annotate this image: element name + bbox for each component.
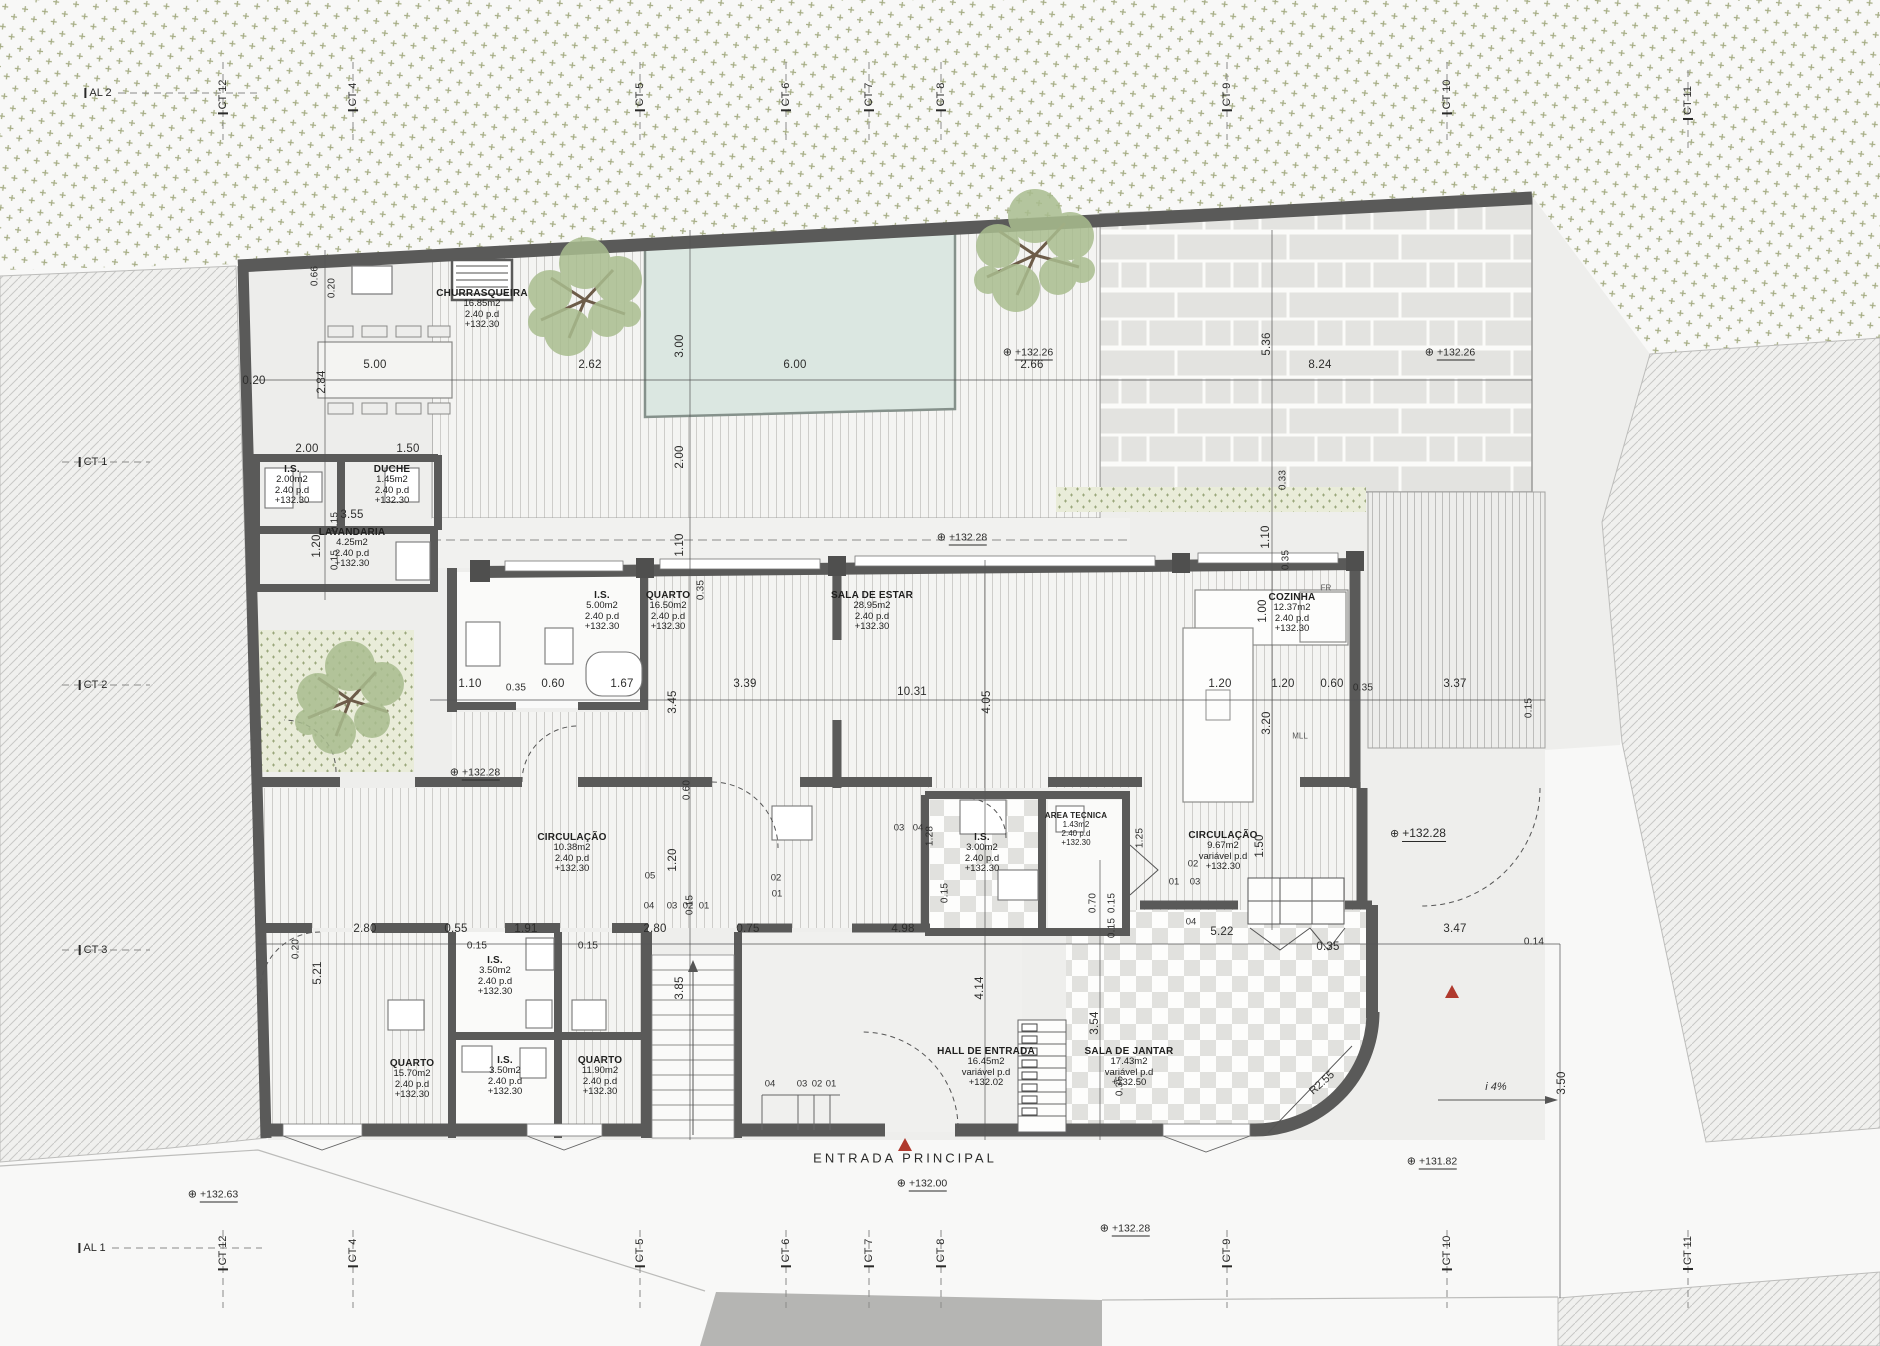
level-icon: ⊕ xyxy=(1100,1223,1109,1235)
kitchen-island xyxy=(1183,628,1253,802)
dim-label: 2.62 xyxy=(578,359,601,371)
dim-label: 0.15 xyxy=(1107,918,1118,938)
dim-label: 1.50 xyxy=(396,443,419,455)
dim-label: 8.24 xyxy=(1308,359,1331,371)
dim-label: 1.67 xyxy=(610,678,633,690)
room-label: HALL DE ENTRADA16.45m2variável p.d+132.0… xyxy=(937,1046,1035,1089)
dim-label: 1.20 xyxy=(1208,678,1231,690)
grid-label: CT 11 xyxy=(1683,1236,1693,1270)
grid-label: CT 8 xyxy=(936,1239,946,1268)
door-code: 02 xyxy=(771,873,782,884)
room-label: I.S.5.00m22.40 p.d+132.30 xyxy=(585,590,620,633)
level-icon: ⊕ xyxy=(1390,828,1399,840)
step-number: 01 xyxy=(699,901,710,912)
dim-label: 5.22 xyxy=(1210,926,1233,938)
dim-label: 0.66 xyxy=(310,266,321,286)
grid-label: CT 1 xyxy=(79,457,108,467)
dim-label: 0.35 xyxy=(1115,1076,1126,1096)
room-label: QUARTO11.90m22.40 p.d+132.30 xyxy=(578,1055,622,1098)
dim-label: 5.00 xyxy=(363,359,386,371)
dim-label: 0.60 xyxy=(1320,678,1343,690)
level-marker: ⊕+131.82 xyxy=(1407,1155,1457,1168)
room-label: SALA DE JANTAR17.43m2variável p.d+132.50 xyxy=(1085,1046,1174,1089)
dim-label: 3.20 xyxy=(1261,711,1273,734)
step-number: 03 xyxy=(797,1079,808,1090)
grid-label: CT 6 xyxy=(781,1239,791,1268)
floor-plan-sheet: CHURRASQUEIRA16.85m22.40 p.d+132.30 I.S.… xyxy=(0,0,1880,1346)
step-number: 05 xyxy=(645,871,656,882)
dim-label: 0.33 xyxy=(1278,470,1289,490)
dim-label: 1.20 xyxy=(667,848,679,871)
hedge-strip xyxy=(1056,487,1366,512)
dim-label: 10.31 xyxy=(897,686,927,698)
grid-label: CT 11 xyxy=(1683,86,1693,120)
dim-label: 0.15 xyxy=(578,941,598,952)
pool xyxy=(645,233,955,417)
level-marker: ⊕+132.00 xyxy=(897,1177,947,1190)
terrace-sink xyxy=(352,266,392,294)
dim-label: 4.14 xyxy=(974,976,986,999)
dim-label: 0.15 xyxy=(1524,698,1535,718)
grid-label: CT 10 xyxy=(1442,1236,1452,1271)
dim-label: 0.60 xyxy=(541,678,564,690)
dishwasher-label: MLL xyxy=(1292,732,1308,741)
dim-label: 4.98 xyxy=(891,923,914,935)
level-marker: ⊕+132.63 xyxy=(188,1188,238,1201)
grid-label-al2: AL 2 xyxy=(84,88,111,98)
stone-patio xyxy=(1100,196,1532,492)
room-label: CIRCULAÇÃO10.38m22.40 p.d+132.30 xyxy=(537,832,606,875)
dim-label: 0.20 xyxy=(291,939,302,959)
dim-label: 0.14 xyxy=(1524,937,1544,948)
grid-label: CT 7 xyxy=(864,83,874,112)
grid-label: CT 12 xyxy=(218,80,228,115)
level-marker: ⊕+132.28 xyxy=(1100,1222,1150,1235)
dim-label: 0.70 xyxy=(1088,893,1099,913)
grid-label: CT 4 xyxy=(348,83,358,112)
dim-label: 2.84 xyxy=(316,370,328,393)
main-entrance-label: ENTRADA PRINCIPAL xyxy=(813,1151,997,1166)
grid-label-al1: AL 1 xyxy=(78,1243,105,1253)
fridge-label: FR xyxy=(1321,584,1332,593)
west-neighbor-hatch xyxy=(0,266,266,1162)
dim-label: 1.00 xyxy=(1257,599,1269,622)
grid-label: CT 10 xyxy=(1442,80,1452,115)
dim-label: 3.85 xyxy=(674,976,686,999)
grid-label: CT 5 xyxy=(635,83,645,112)
room-label: COZINHA12.37m22.40 p.d+132.30 xyxy=(1269,592,1316,635)
room-label: I.S.2.00m22.40 p.d+132.30 xyxy=(275,464,310,507)
room-label: I.S.3.00m22.40 p.d+132.30 xyxy=(965,832,1000,875)
step-number: 04 xyxy=(644,901,655,912)
dim-label: 0.15 xyxy=(330,550,341,570)
level-icon: ⊕ xyxy=(450,767,459,779)
dim-label: 0.35 xyxy=(1316,941,1339,953)
dim-label: 0.35 xyxy=(506,683,526,694)
dim-label: 2.00 xyxy=(295,443,318,455)
dim-label: 1.10 xyxy=(674,533,686,556)
level-marker: ⊕+132.26 xyxy=(1003,346,1053,359)
grid-label: CT 2 xyxy=(79,680,108,690)
door-code: 04 xyxy=(1186,917,1197,928)
dim-label: 0.15 xyxy=(467,941,487,952)
dim-label: 1.20 xyxy=(1271,678,1294,690)
dim-label: 1.91 xyxy=(514,923,537,935)
room-label: CHURRASQUEIRA16.85m22.40 p.d+132.30 xyxy=(436,288,528,331)
staircase xyxy=(652,955,734,1138)
grid-label: CT 5 xyxy=(635,1239,645,1268)
dim-label: 0.35 xyxy=(1281,550,1292,570)
room-label: I.S.3.50m22.40 p.d+132.30 xyxy=(478,955,513,998)
grid-label: CT 8 xyxy=(936,83,946,112)
room-label: CIRCULAÇÃO9.67m2variável p.d+132.30 xyxy=(1188,830,1257,873)
grid-label: CT 4 xyxy=(348,1239,358,1268)
dim-label: 1.20 xyxy=(311,534,323,557)
dim-label: 0.35 xyxy=(696,580,707,600)
dim-label: 1.10 xyxy=(458,678,481,690)
dim-label: 2.80 xyxy=(643,923,666,935)
dim-label: 3.50 xyxy=(1556,1071,1568,1094)
door-code: 01 xyxy=(772,889,783,900)
south-building xyxy=(700,1292,1102,1346)
dim-label: 3.37 xyxy=(1443,678,1466,690)
grid-label: CT 3 xyxy=(79,945,108,955)
dim-label: 0.15 xyxy=(940,883,951,903)
ramp-slope-label: i 4% xyxy=(1485,1081,1506,1093)
step-number: 01 xyxy=(826,1079,837,1090)
dim-label: 2.80 xyxy=(353,923,376,935)
level-marker: ⊕+132.28 xyxy=(937,531,987,544)
plan-drawing xyxy=(0,0,1880,1346)
door-code: 01 xyxy=(1169,877,1180,888)
hall-floor xyxy=(738,932,1022,1132)
level-icon: ⊕ xyxy=(1425,347,1434,359)
level-icon: ⊕ xyxy=(1003,347,1012,359)
room-label: I.S.3.50m22.40 p.d+132.30 xyxy=(488,1055,523,1098)
grid-label: CT 9 xyxy=(1222,83,1232,112)
room-label: SALA DE ESTAR28.95m22.40 p.d+132.30 xyxy=(831,590,913,633)
door-code: 03 xyxy=(1190,877,1201,888)
dim-label: 4.05 xyxy=(981,690,993,713)
dim-label: 0.35 xyxy=(1353,683,1373,694)
door-code: 02 xyxy=(1188,859,1199,870)
dim-label: 0.15 xyxy=(330,512,341,532)
dim-label: 1.50 xyxy=(1254,834,1266,857)
dim-label: 0.15 xyxy=(1107,893,1118,913)
dim-label: 0.60 xyxy=(682,780,693,800)
level-icon: ⊕ xyxy=(897,1178,906,1190)
dim-label: 0.55 xyxy=(444,923,467,935)
dim-label: 1.25 xyxy=(1135,828,1146,848)
dim-label: 3.47 xyxy=(1443,923,1466,935)
step-number: 02 xyxy=(683,901,694,912)
level-marker: ⊕+132.26 xyxy=(1425,346,1475,359)
dim-label: 0.20 xyxy=(327,278,338,298)
dim-label: 6.00 xyxy=(783,359,806,371)
dim-label: 0.20 xyxy=(242,375,265,387)
step-number: 04 xyxy=(765,1079,776,1090)
dim-label: 1.28 xyxy=(925,826,936,846)
dim-label: 0.75 xyxy=(736,923,759,935)
dim-label: 2.00 xyxy=(674,445,686,468)
level-marker: ⊕+132.28 xyxy=(450,766,500,779)
door-code: 03 xyxy=(894,823,905,834)
bedroom2-floor xyxy=(262,932,452,1132)
level-icon: ⊕ xyxy=(937,532,946,544)
room-label: DUCHE1.45m22.40 p.d+132.30 xyxy=(374,464,411,507)
grid-label: CT 7 xyxy=(864,1239,874,1268)
level-icon: ⊕ xyxy=(188,1189,197,1201)
dim-label: 1.10 xyxy=(1260,525,1272,548)
step-number: 02 xyxy=(812,1079,823,1090)
grid-label: CT 9 xyxy=(1222,1239,1232,1268)
dim-label: 3.55 xyxy=(340,509,363,521)
dim-label: 5.21 xyxy=(312,961,324,984)
room-label: AREA TECNICA1.43m22.40 p.d+132.30 xyxy=(1045,812,1108,848)
step-number: 03 xyxy=(667,901,678,912)
dim-label: 3.45 xyxy=(667,690,679,713)
dim-label: 5.36 xyxy=(1261,332,1273,355)
dim-label: 3.54 xyxy=(1089,1011,1101,1034)
room-label: QUARTO15.70m22.40 p.d+132.30 xyxy=(390,1058,434,1101)
dim-label: 3.00 xyxy=(674,334,686,357)
room-label: QUARTO16.50m22.40 p.d+132.30 xyxy=(646,590,690,633)
level-marker: ⊕+132.28 xyxy=(1390,826,1446,840)
exterior-steps xyxy=(1368,492,1545,748)
door-code: 04 xyxy=(913,823,924,834)
dim-label: 2.66 xyxy=(1020,359,1043,371)
dim-label: 3.39 xyxy=(733,678,756,690)
level-icon: ⊕ xyxy=(1407,1156,1416,1168)
grid-label: CT 12 xyxy=(218,1236,228,1271)
grid-label: CT 6 xyxy=(781,83,791,112)
